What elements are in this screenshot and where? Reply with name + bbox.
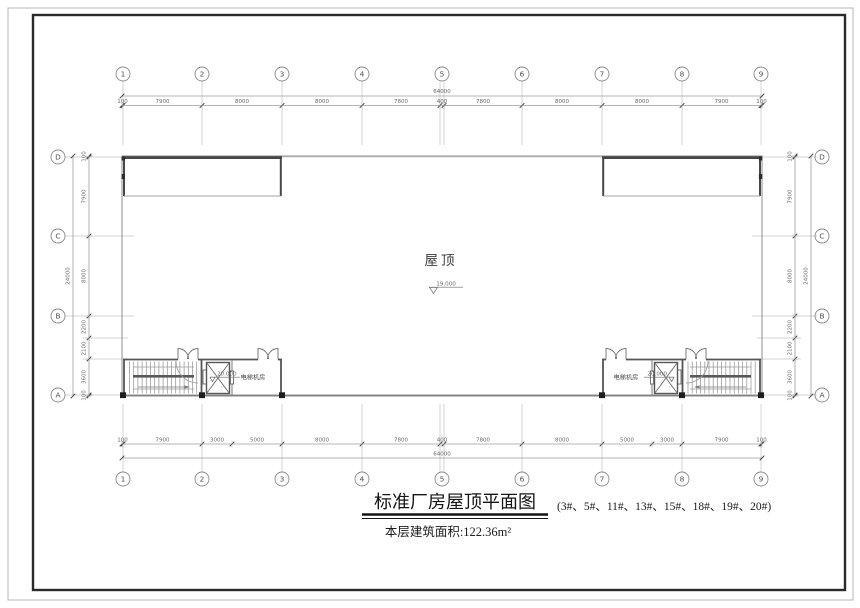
wall-nub	[759, 157, 762, 161]
dim-right-label: 2100	[788, 341, 794, 355]
grid-bubble-col-6-bottom-label: 6	[520, 475, 525, 484]
roof-plan-drawing: 1007900800080007800400780080008000790010…	[0, 0, 860, 608]
grid-bubble-row-D-right-label: D	[819, 153, 825, 162]
dim-top-label: 100	[117, 99, 128, 105]
column	[199, 392, 205, 398]
dim-top-label: 7800	[476, 99, 490, 105]
dim-top-label: 400	[437, 99, 448, 105]
grid-bubble-col-9-bottom-label: 9	[759, 475, 764, 484]
wall-nub	[122, 157, 125, 161]
grid-bubble-row-A-right-label: A	[819, 391, 824, 400]
machine-room-label: 电梯机房	[241, 373, 266, 381]
grid-bubble-col-1-bottom-label: 1	[121, 475, 126, 484]
dim-bottom-label: 7800	[476, 438, 490, 444]
double-door	[686, 349, 706, 360]
grid-bubble-col-8-top-label: 8	[680, 70, 685, 79]
column	[120, 392, 126, 398]
grid-bubble-row-C-left-label: C	[55, 232, 60, 241]
dim-bottom-label: 7900	[156, 438, 170, 444]
column	[279, 392, 285, 398]
dim-top-label: 8000	[315, 99, 329, 105]
stair-direction-arrow	[185, 385, 191, 388]
grid-bubble-row-B-left-label: B	[55, 312, 60, 321]
grid-bubble-col-4-bottom-label: 4	[360, 475, 365, 484]
dim-bottom-label: 3000	[210, 438, 224, 444]
grid-bubble-col-8-bottom-label: 8	[680, 475, 685, 484]
dim-bottom-label: 5000	[620, 438, 634, 444]
dim-right-overall-label: 24000	[804, 267, 810, 285]
column	[758, 392, 764, 398]
grid-bubble-col-1-top-label: 1	[121, 70, 126, 79]
dim-left-label: 7900	[82, 189, 88, 203]
grid-bubble-row-C-right-label: C	[819, 232, 824, 241]
dim-bottom-label: 8000	[315, 438, 329, 444]
dim-left-label: 2100	[82, 341, 88, 355]
dim-bottom-label: 8000	[555, 438, 569, 444]
dim-right-label: 3600	[788, 370, 794, 384]
grid-bubble-col-7-bottom-label: 7	[600, 475, 605, 484]
canopy-right	[602, 156, 762, 196]
dim-bottom-label: 400	[437, 438, 448, 444]
grid-bubble-col-5-bottom-label: 5	[440, 475, 445, 484]
dim-left-label: 100	[82, 390, 88, 401]
elevation-marker-icon	[669, 377, 674, 381]
grid-bubble-col-6-top-label: 6	[520, 70, 525, 79]
dim-right-label: 100	[788, 390, 794, 401]
title-note: (3#、5#、11#、13#、15#、18#、19#、20#)	[557, 501, 771, 513]
dim-top-label: 100	[756, 99, 767, 105]
grid-bubble-col-7-top-label: 7	[600, 70, 605, 79]
dim-top-label: 8000	[555, 99, 569, 105]
dim-top-overall-label: 64000	[433, 89, 451, 95]
dim-bottom-label: 5000	[250, 438, 264, 444]
canopy-left	[122, 156, 282, 196]
dim-left-label: 2200	[82, 320, 88, 334]
machine-room-elevation: 20.000	[647, 372, 667, 378]
dim-right-label: 7900	[788, 189, 794, 203]
dim-top-label: 7800	[394, 99, 408, 105]
dim-left-label: 8000	[82, 269, 88, 283]
dim-right-label: 8000	[788, 269, 794, 283]
machine-room-label: 电梯机房	[614, 373, 639, 381]
grid-bubble-col-5-top-label: 5	[440, 70, 445, 79]
grid-bubble-col-3-top-label: 3	[280, 70, 285, 79]
dim-bottom-label: 3000	[660, 438, 674, 444]
dim-bottom-label: 100	[756, 438, 767, 444]
dim-left-label: 3600	[82, 370, 88, 384]
roof-elevation-marker: 19.000	[429, 282, 463, 294]
machine-room-elevation: 20.000	[217, 372, 237, 378]
dim-top-label: 7900	[715, 99, 729, 105]
door-swing-arc	[176, 361, 198, 383]
grid-bubble-col-3-bottom-label: 3	[280, 475, 285, 484]
double-door	[258, 349, 278, 360]
drawing-sheet: 1007900800080007800400780080008000790010…	[0, 0, 860, 608]
floor-area-label: 本层建筑面积:122.36m²	[385, 524, 512, 539]
grid-bubble-row-A-left-label: A	[55, 391, 60, 400]
grid-bubble-row-D-left-label: D	[55, 153, 61, 162]
counterweight	[678, 370, 681, 384]
stair-elevator-unit-left: 20.000 电梯机房	[123, 359, 282, 395]
dim-bottom-label: 100	[117, 438, 128, 444]
stair-landing-rail	[133, 375, 194, 378]
column	[679, 392, 685, 398]
elevation-marker-icon	[210, 377, 215, 381]
double-door	[178, 349, 198, 360]
elevation-marker-icon	[430, 287, 438, 293]
dim-bottom-overall-label: 64000	[433, 452, 451, 458]
dim-bottom-label: 7900	[715, 438, 729, 444]
grid-bubble-row-B-right-label: B	[819, 312, 824, 321]
dim-bottom-label: 7800	[394, 438, 408, 444]
wall-nub	[122, 174, 125, 179]
stair-landing-rail	[690, 375, 751, 378]
double-door	[606, 349, 626, 360]
grid-bubble-col-2-top-label: 2	[200, 70, 205, 79]
dim-right-label: 100	[788, 151, 794, 162]
wall-nub	[759, 174, 762, 179]
grid-bubble-col-9-top-label: 9	[759, 70, 764, 79]
drawing-title: 标准厂房屋顶平面图	[374, 492, 536, 512]
dim-top-label: 7900	[156, 99, 170, 105]
dim-top-label: 8000	[635, 99, 649, 105]
stair-elevator-unit-right: 20.000 电梯机房	[602, 359, 761, 395]
grid-layer	[65, 82, 817, 472]
dim-right-label: 2200	[788, 320, 794, 334]
dim-left-overall-label: 24000	[66, 267, 72, 285]
grid-bubble-col-2-bottom-label: 2	[200, 475, 205, 484]
roof-elevation: 19.000	[436, 282, 456, 288]
column	[599, 392, 605, 398]
roof-label: 屋顶	[425, 253, 458, 268]
dim-left-label: 100	[82, 151, 88, 162]
grid-bubble-col-4-top-label: 4	[360, 70, 365, 79]
dim-top-label: 8000	[235, 99, 249, 105]
title-block: 标准厂房屋顶平面图 (3#、5#、11#、13#、15#、18#、19#、20#…	[362, 492, 771, 539]
counterweight	[203, 370, 206, 384]
